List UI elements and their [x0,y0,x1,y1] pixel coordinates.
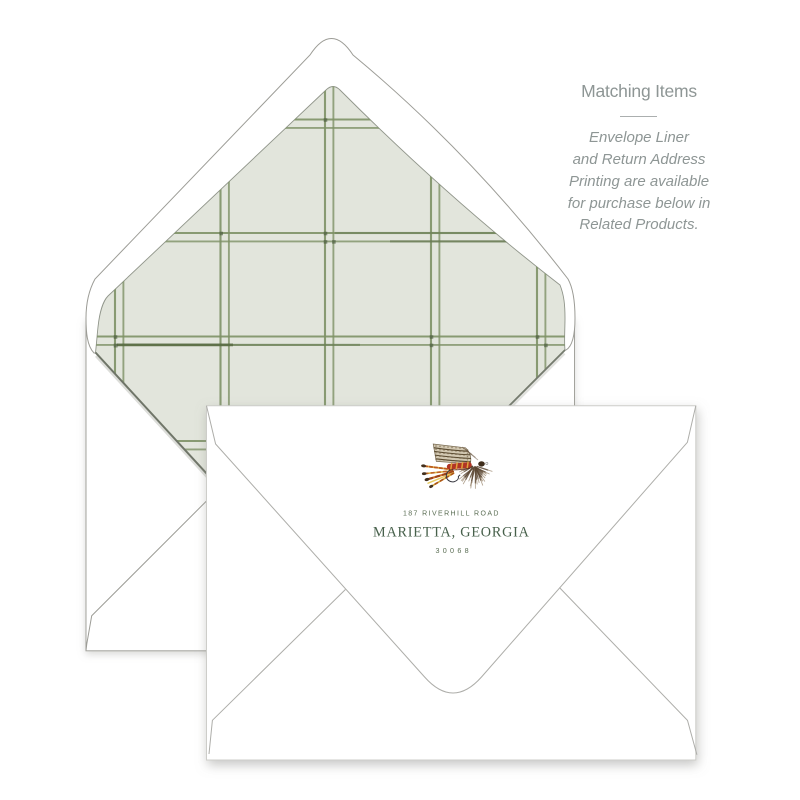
svg-text:MARIETTA, GEORGIA: MARIETTA, GEORGIA [373,525,530,541]
svg-text:30068: 30068 [435,546,472,555]
svg-text:187 RIVERHILL ROAD: 187 RIVERHILL ROAD [403,511,500,518]
